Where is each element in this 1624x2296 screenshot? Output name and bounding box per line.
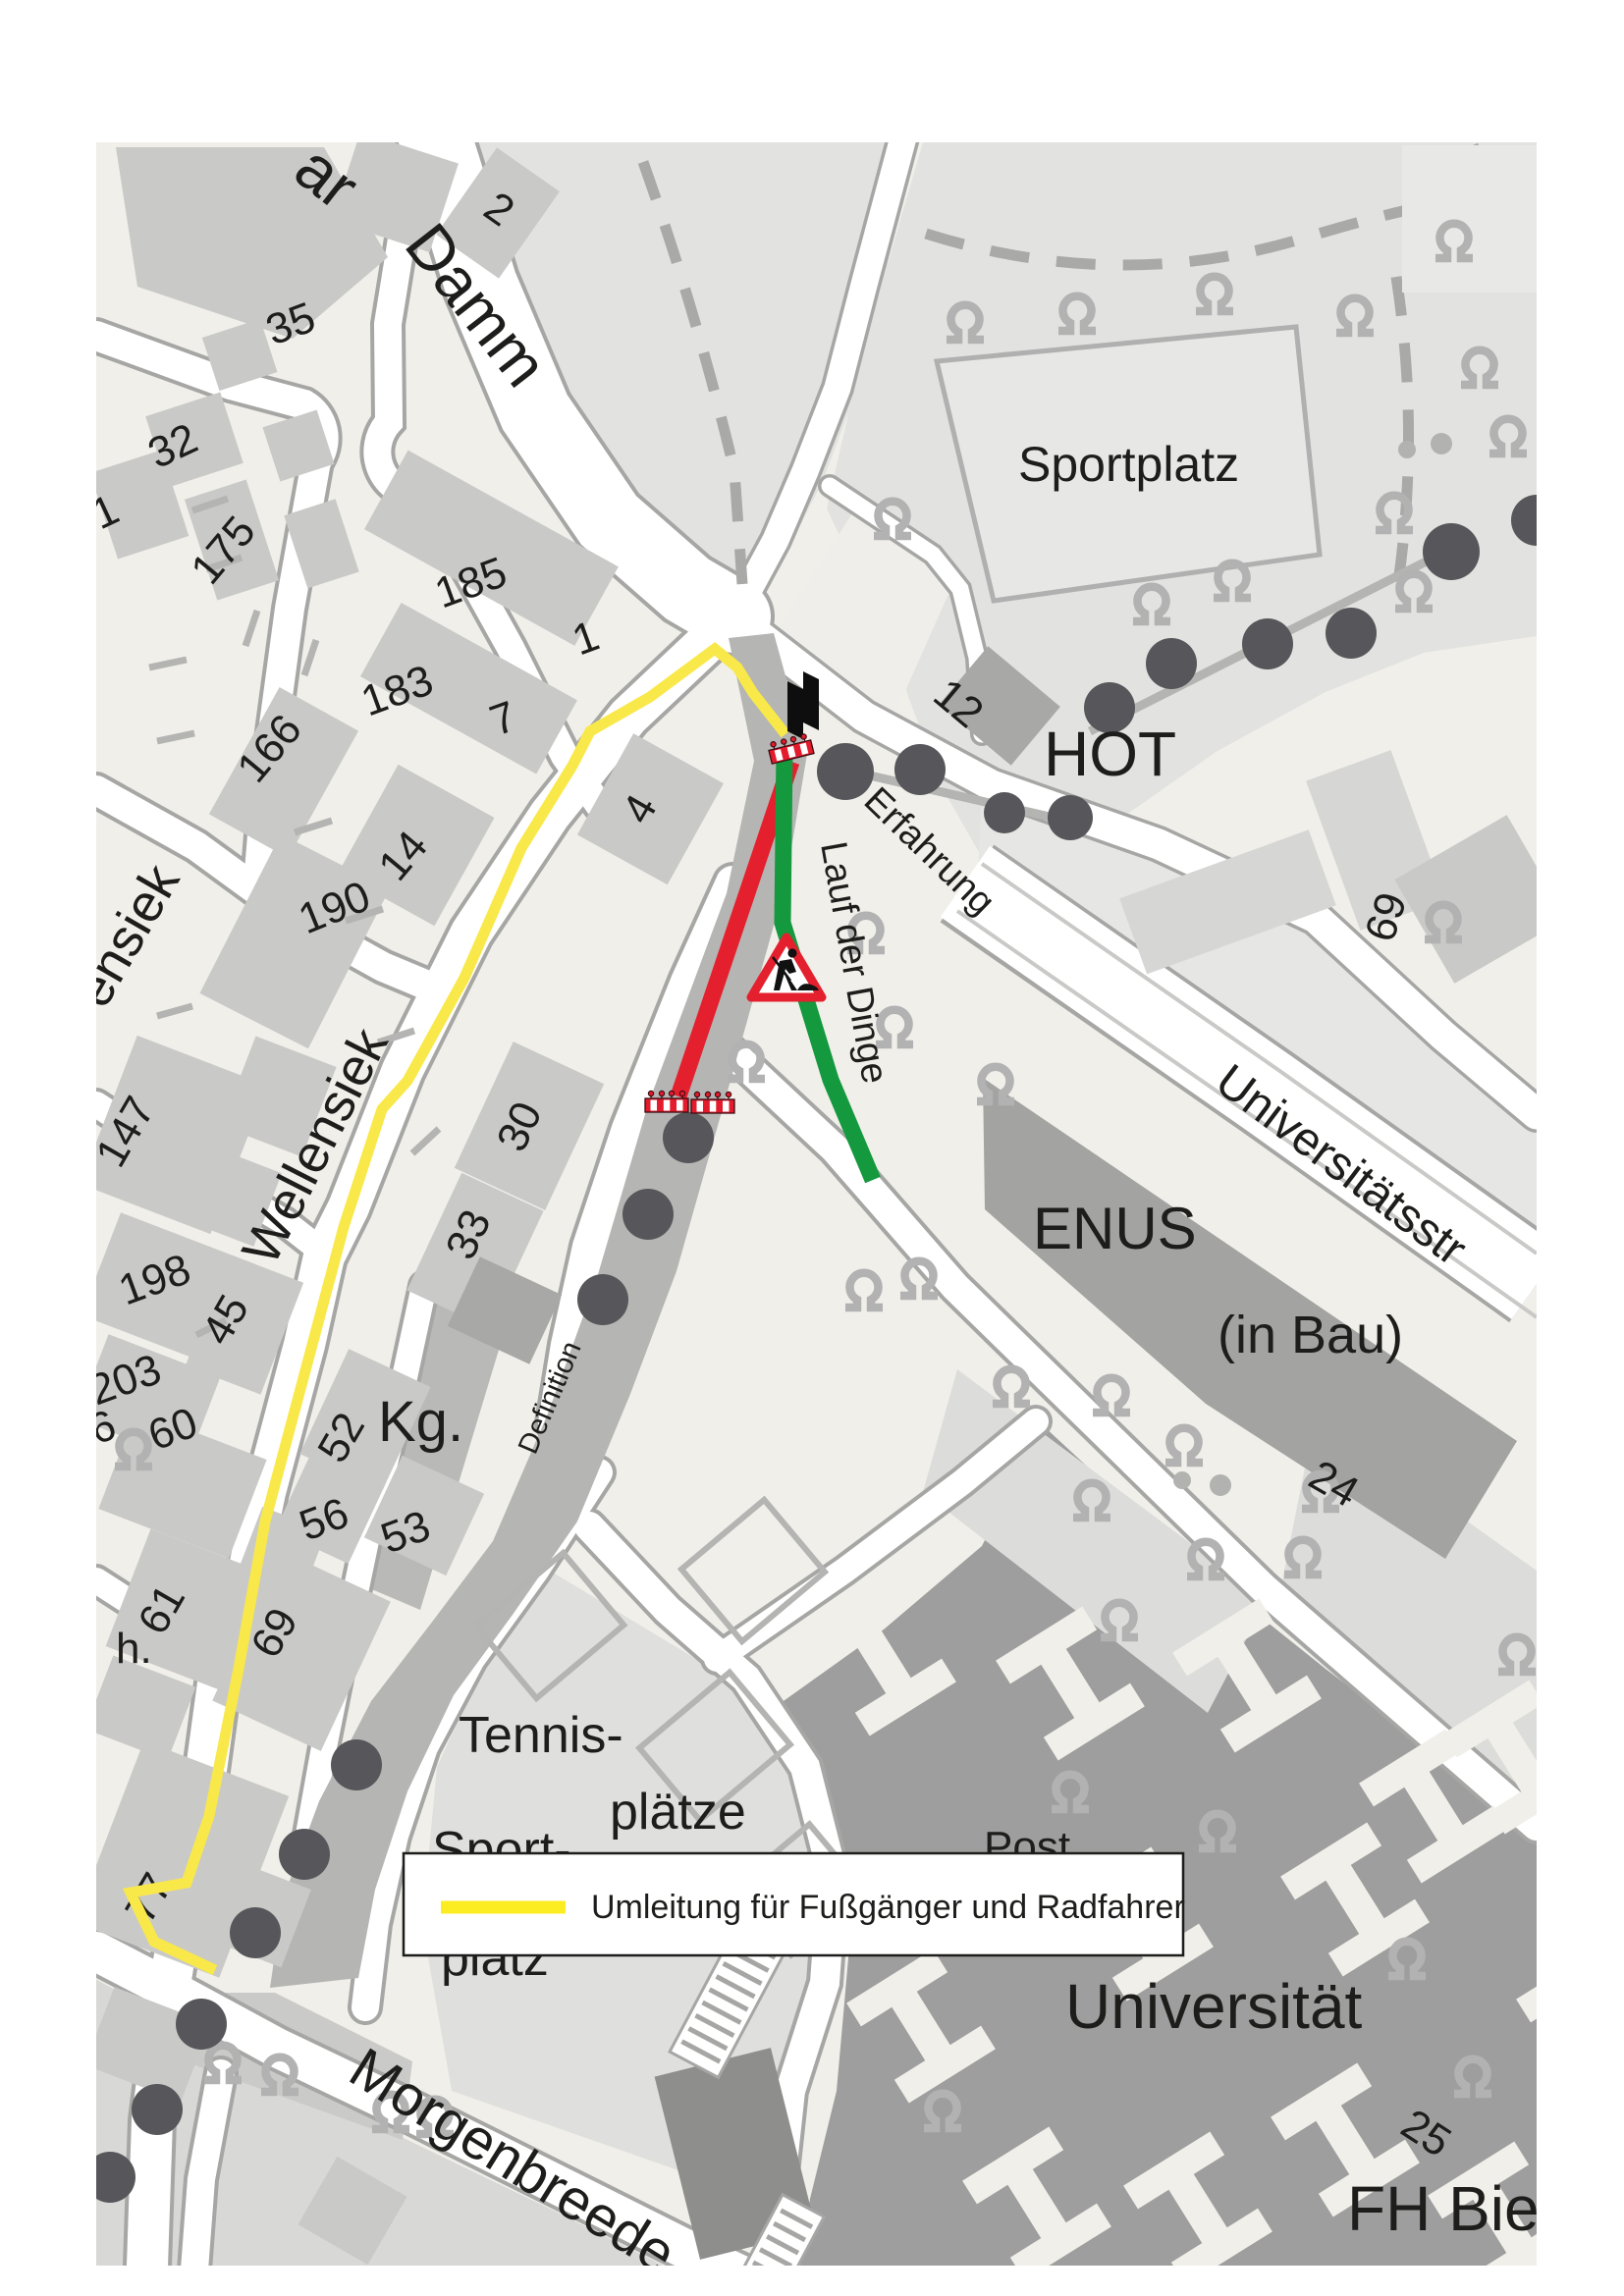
svg-text:Tennis-: Tennis- [459, 1707, 623, 1764]
svg-text:Umleitung für Fußgänger und Ra: Umleitung für Fußgänger und Radfahrer [591, 1889, 1185, 1926]
svg-text:plätze: plätze [610, 1784, 746, 1841]
svg-text:ENUS: ENUS [1033, 1196, 1197, 1261]
svg-text:Universität: Universität [1065, 1971, 1363, 2042]
svg-text:Kg.: Kg. [378, 1390, 463, 1454]
svg-text:HOT: HOT [1044, 719, 1176, 789]
svg-text:(in Bau): (in Bau) [1218, 1306, 1403, 1364]
svg-text:h.: h. [116, 1625, 152, 1673]
svg-text:FH Bie: FH Bie [1347, 2173, 1540, 2244]
svg-text:Sportplatz: Sportplatz [1018, 437, 1239, 492]
